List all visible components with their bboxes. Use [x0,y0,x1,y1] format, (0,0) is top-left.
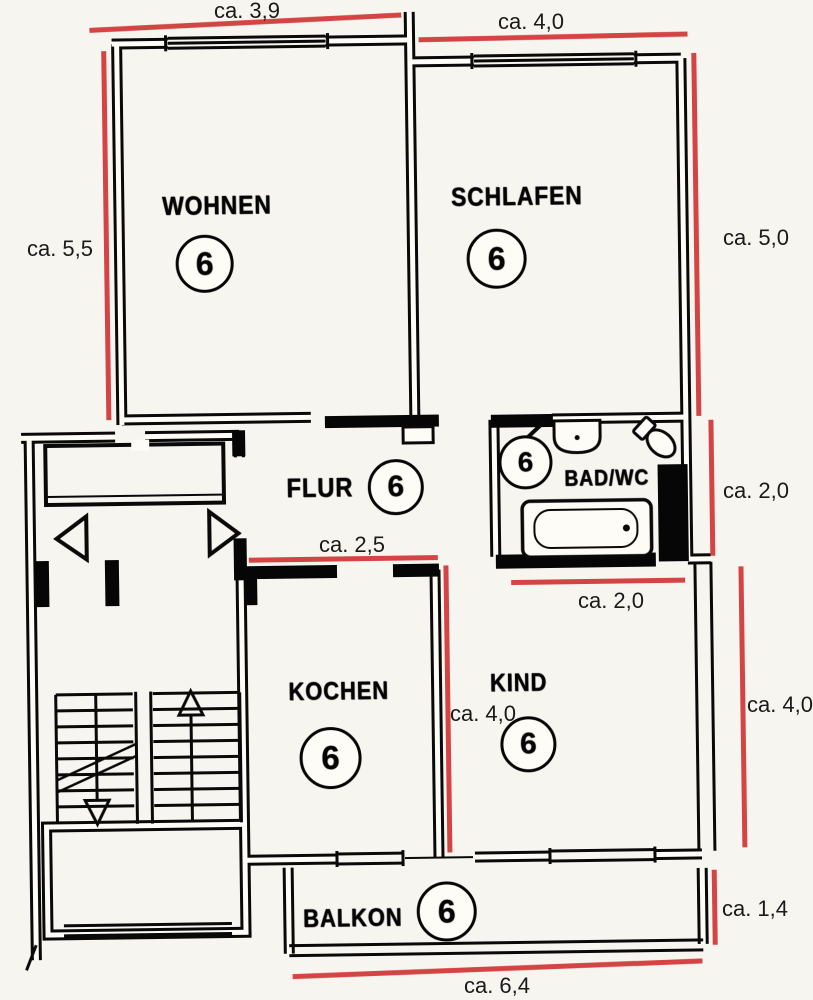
room-label-schlafen: SCHLAFEN [451,180,583,213]
room-label-wohnen: WOHNEN [162,189,272,222]
room-number-text: 6 [517,446,533,478]
window-kind [550,847,655,864]
room-number-text: 6 [438,893,456,930]
floorplan-canvas: WOHNEN SCHLAFEN FLUR BAD/WC KOCHEN KIND … [0,0,813,1000]
kind-right-wall [695,562,715,851]
entry-landing [45,439,224,505]
window-bedroom [472,51,636,69]
room-label-bad-wc: BAD/WC [564,465,649,492]
balcony-door-threshold [405,857,473,858]
arrow-left-icon [56,516,87,559]
balcony-parapet [289,940,703,956]
room-number-text: 6 [487,240,505,277]
window-living [165,33,327,51]
room-number-text: 6 [387,470,404,504]
room-number-text: 6 [196,245,214,282]
room-label-flur: FLUR [286,472,353,504]
scanned-plan: WOHNEN SCHLAFEN FLUR BAD/WC KOCHEN KIND … [0,0,813,1000]
room-label-balkon: BALKON [303,904,403,934]
corridor-arrows [56,511,239,560]
room-number-text: 6 [520,727,537,761]
room-label-kochen: KOCHEN [288,677,389,707]
room-number-text: 6 [321,739,340,777]
bathtub-icon [522,500,652,558]
chimney-block [403,427,433,443]
room-label-kind: KIND [490,669,548,699]
window-kitchen [337,850,403,867]
